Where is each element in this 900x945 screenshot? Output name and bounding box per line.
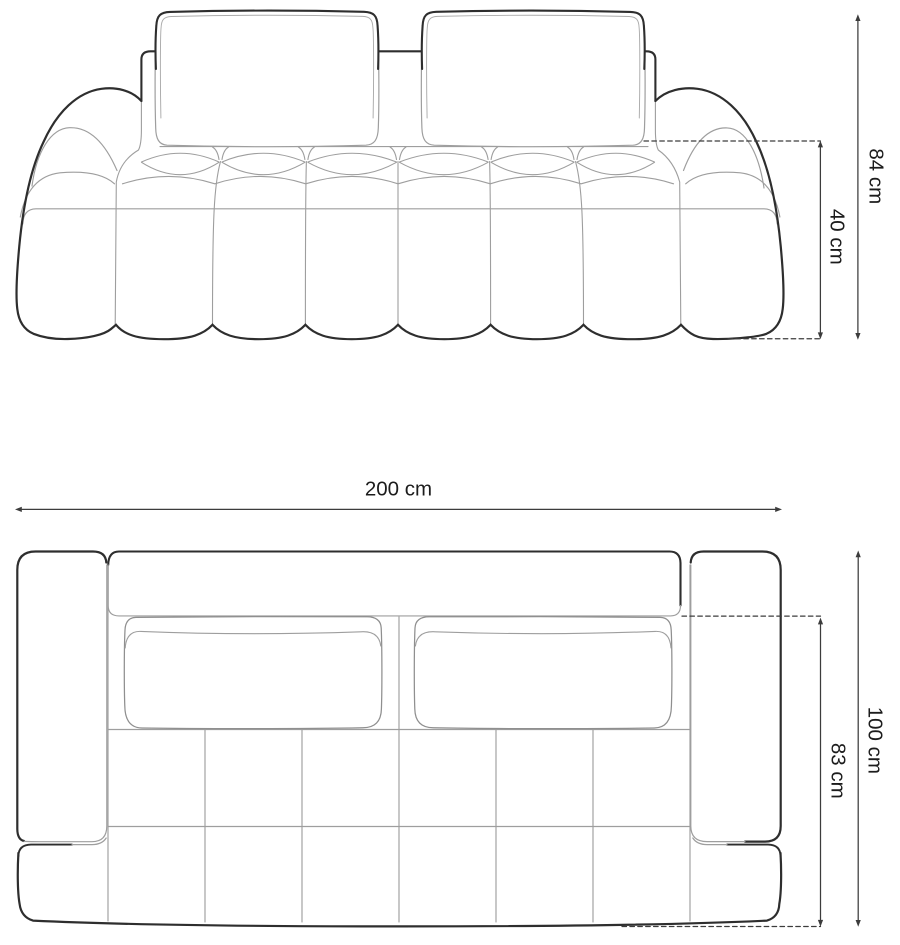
svg-text:200 cm: 200 cm bbox=[365, 478, 432, 501]
svg-text:83 cm: 83 cm bbox=[827, 743, 850, 799]
svg-text:100 cm: 100 cm bbox=[864, 707, 887, 774]
svg-text:84 cm: 84 cm bbox=[865, 148, 888, 204]
svg-text:40 cm: 40 cm bbox=[826, 209, 849, 265]
